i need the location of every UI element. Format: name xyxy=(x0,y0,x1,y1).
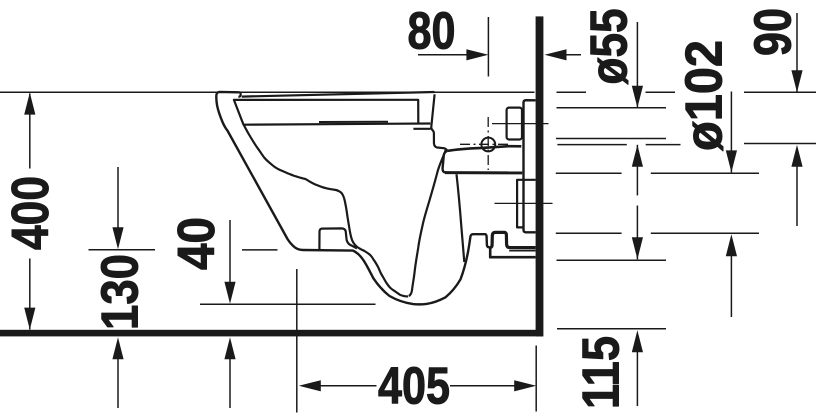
svg-text:405: 405 xyxy=(378,357,450,415)
svg-text:130: 130 xyxy=(92,254,150,330)
svg-text:40: 40 xyxy=(168,217,226,270)
svg-text:ø102: ø102 xyxy=(676,40,734,151)
svg-text:115: 115 xyxy=(573,336,631,409)
svg-text:400: 400 xyxy=(2,176,60,250)
svg-text:ø55: ø55 xyxy=(581,9,639,85)
svg-text:90: 90 xyxy=(745,8,803,56)
svg-text:80: 80 xyxy=(408,3,456,61)
